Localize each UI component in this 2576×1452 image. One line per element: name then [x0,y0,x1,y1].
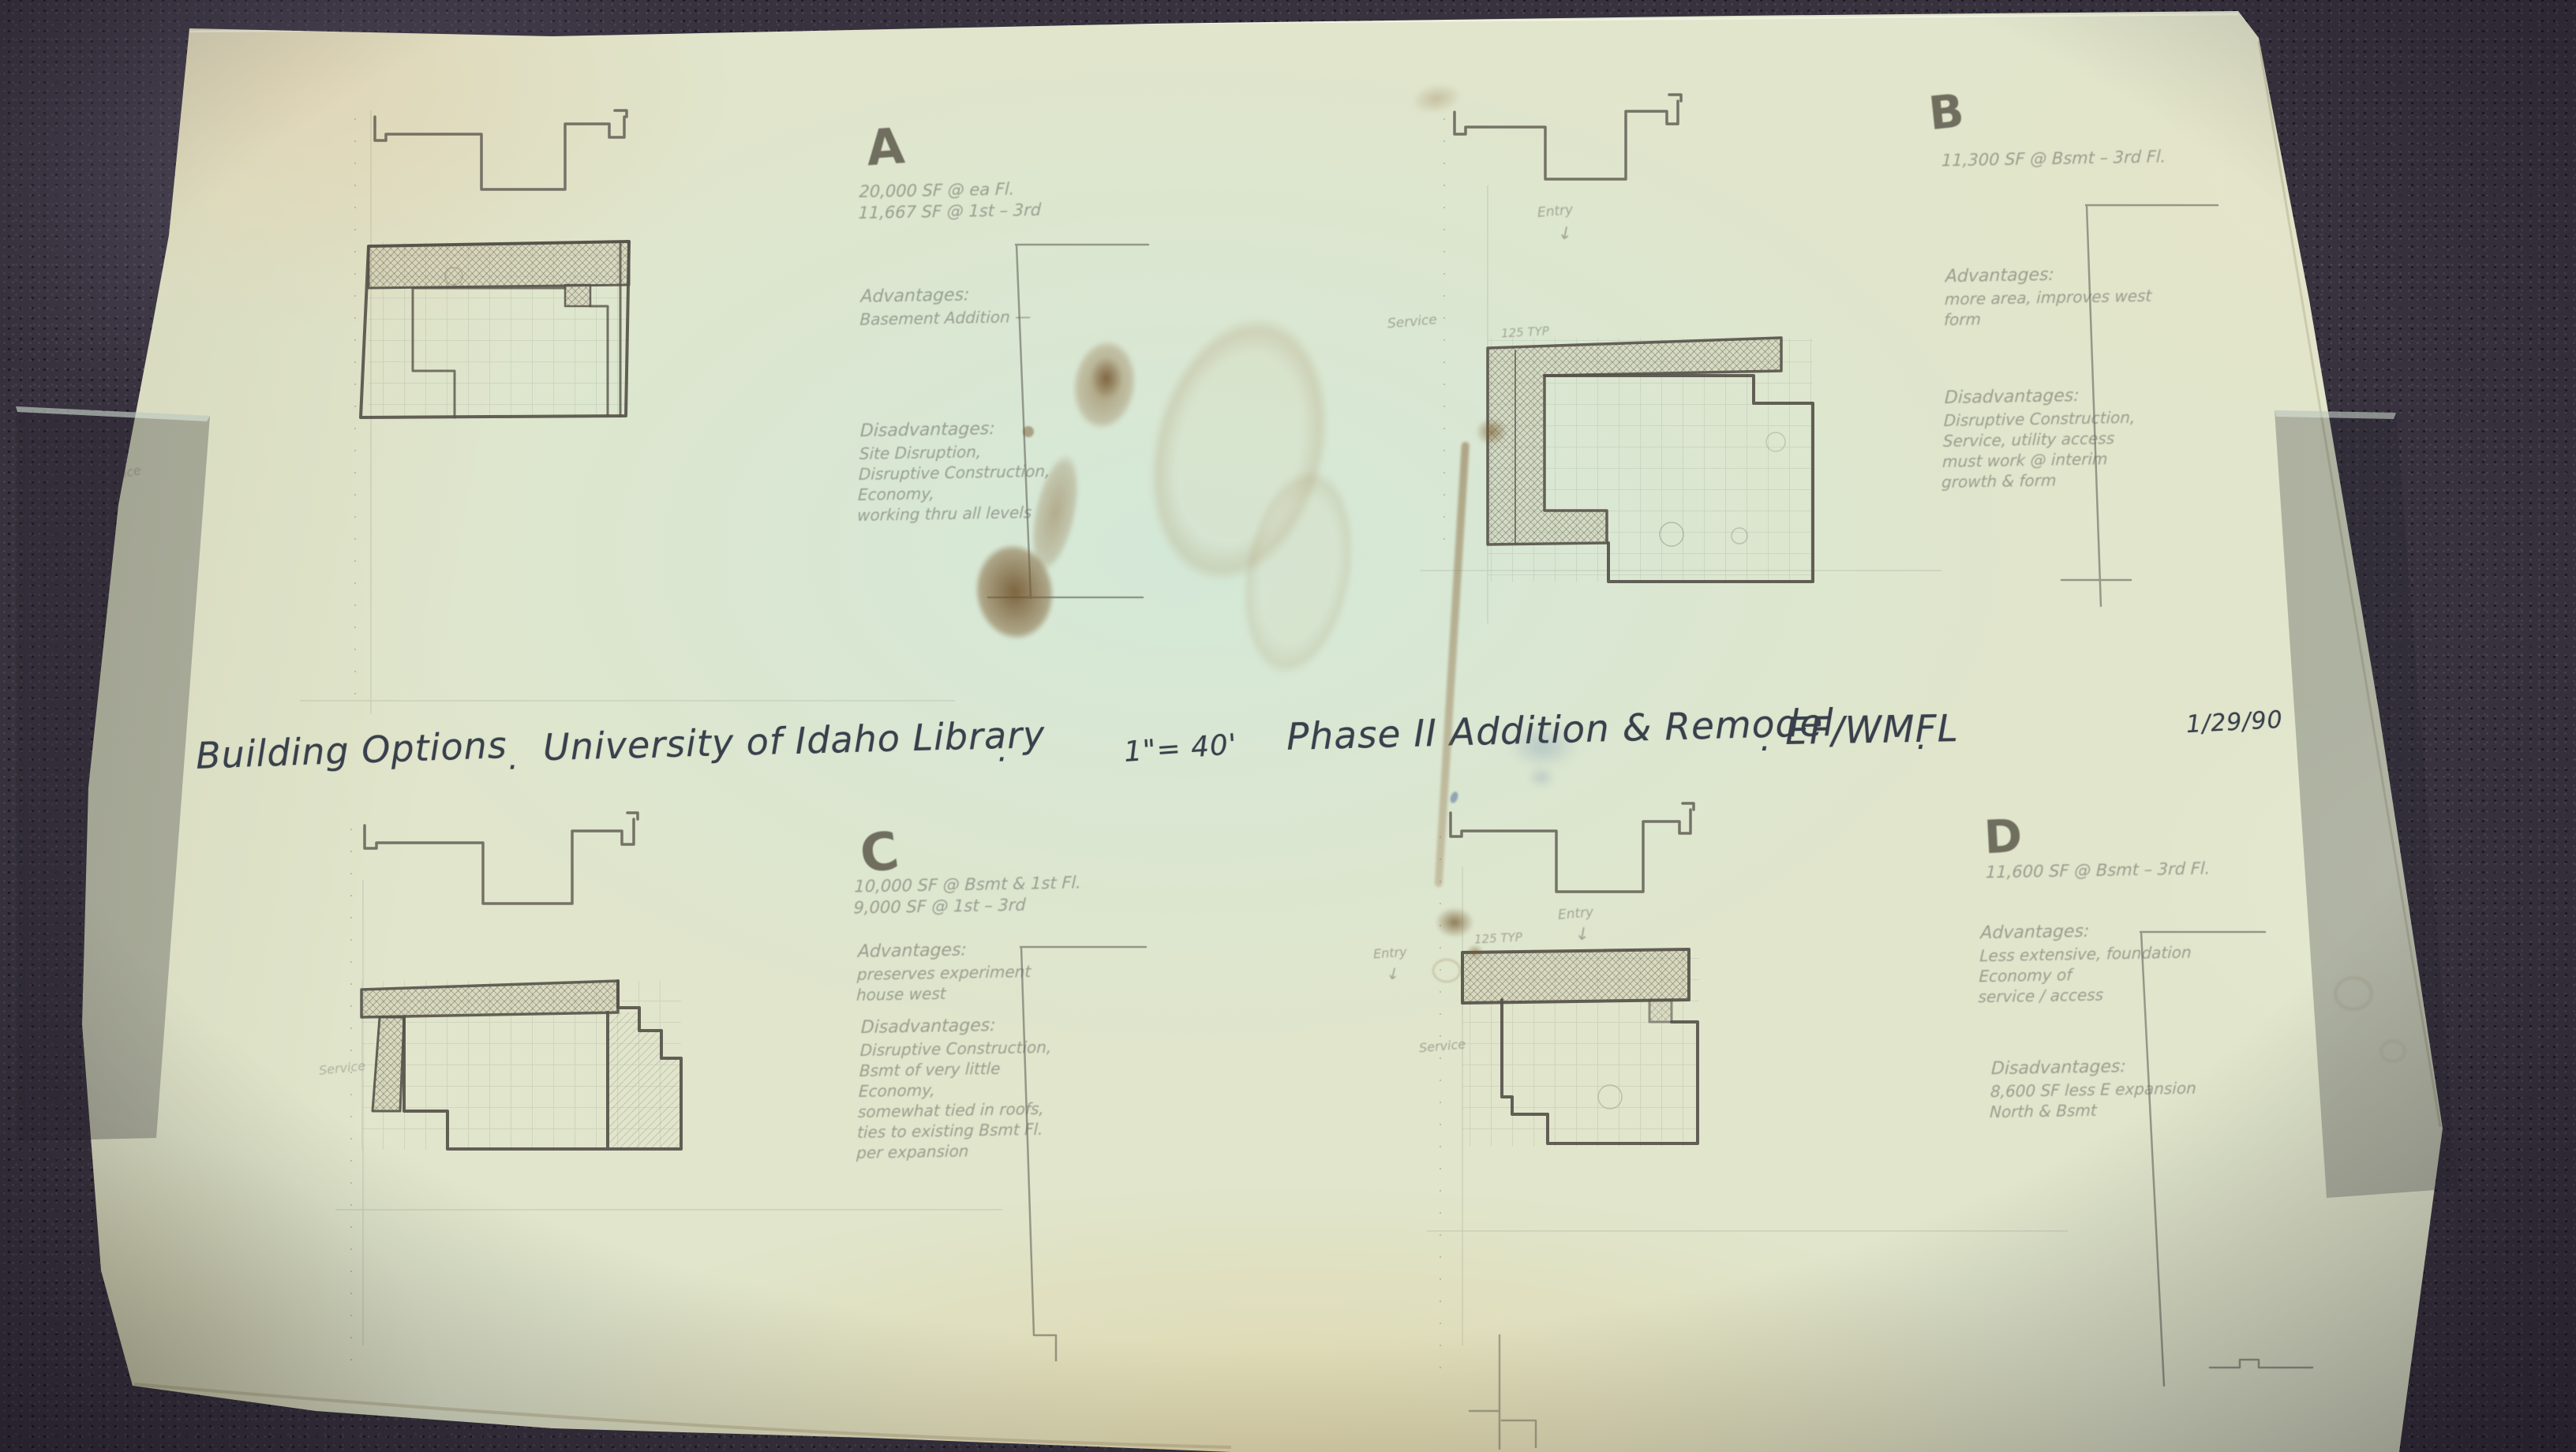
advantages-lines: preserves experimenthouse west [856,961,1032,1005]
photo-of-sketch-sheet: { "title": { "project": "Building Option… [0,0,2576,1452]
advantages-lines: more area, improves westform [1944,286,2152,331]
notes-line: ties to existing Bsmt Fl. [857,1119,1049,1143]
option-c-disadvantages: Disadvantages: Disruptive Construction,B… [856,1015,1053,1163]
notes-line: Disruptive Construction, [859,1037,1051,1061]
title-dot: · [1915,728,1926,766]
notes-line: 11,600 SF @ Bsmt – 3rd Fl. [1986,859,2211,884]
dim-annotation-d: 125 TYP [1474,930,1523,946]
option-d-disadvantages: Disadvantages: 8,600 SF less E expansion… [1990,1056,2198,1123]
disadvantages-lines: Site Disruption,Disruptive Construction,… [857,440,1051,526]
option-b-disadvantages: Disadvantages: Disruptive Construction,S… [1941,385,2136,492]
disadvantages-lines: Disruptive Construction,Bsmt of very lit… [856,1037,1052,1163]
entry-annotation-d: Entry [1557,904,1594,923]
notes-line: 8,600 SF less E expansion [1990,1078,2197,1102]
notes-line: 11,300 SF @ Bsmt – 3rd Fl. [1941,147,2166,172]
notes-line: house west [856,982,1031,1005]
notes-line: more area, improves west [1945,286,2152,310]
plan-a-roof-outline [375,110,627,189]
advantages-lines: Less extensive, foundationEconomy ofserv… [1978,942,2192,1008]
dim-annotation-b: 125 TYP [1501,324,1550,340]
notes-line: must work @ interim [1942,448,2134,472]
sketch-sheet: A B C D 20,000 SF @ ea Fl.11,667 SF @ 1s… [0,0,2576,1452]
disadvantages-heading: Disadvantages: [860,1015,1052,1038]
advantages-heading: Advantages: [860,284,1032,308]
notes-line: 11,667 SF @ 1st – 3rd [858,200,1042,224]
option-d-label: D [1983,809,2024,864]
title-dot: · [996,742,1007,778]
plan-a-addition-hatch [369,241,629,288]
title-firm: EF/WMFL [1785,707,1960,754]
plan-d-addition-hatch [1462,949,1689,1003]
notes-line: 10,000 SF @ Bsmt & 1st Fl. [854,872,1081,897]
notes-line: Basement Addition — [859,306,1032,330]
advantages-heading: Advantages: [858,939,1032,963]
disadvantages-heading: Disadvantages: [859,418,1051,442]
plan-c-roof-outline [365,813,638,904]
notes-line: per expansion [856,1140,1048,1163]
notes-line: working thru all levels [857,502,1049,526]
notes-line: 20,000 SF @ ea Fl. [859,178,1043,203]
option-b-advantages: Advantages: more area, improves westform [1944,264,2153,331]
title-date: 1/29/90 [2185,706,2283,739]
option-a-advantages: Advantages: Basement Addition — [859,284,1032,330]
notes-line: Less extensive, foundation [1979,942,2192,967]
notes-line: growth & form [1941,469,2133,492]
option-b-area-notes: 11,300 SF @ Bsmt – 3rd Fl. [1941,147,2166,172]
title-dot: · [507,750,518,786]
entry-annotation-b: Entry [1537,202,1574,221]
advantages-lines: Basement Addition — [859,306,1032,330]
disadvantages-heading: Disadvantages: [1944,385,2136,409]
plan-d-roof-outline [1451,803,1694,892]
plan-b-drawing [1455,95,2218,606]
option-b-label: B [1926,84,1967,140]
notes-line: preserves experiment [857,961,1032,985]
disadvantages-lines: 8,600 SF less E expansionNorth & Bsmt [1990,1078,2197,1123]
disadvantages-lines: Disruptive Construction,Service, utility… [1941,407,2136,492]
option-a-area-notes: 20,000 SF @ ea Fl.11,667 SF @ 1st – 3rd [858,178,1042,224]
option-c-advantages: Advantages: preserves experimenthouse we… [856,939,1032,1005]
option-a-label: A [865,117,907,177]
entry-annotation-c: Entry [1372,945,1407,962]
title-dot: · [1758,729,1769,768]
notes-line: form [1944,306,2151,331]
plan-b-roof-outline [1455,95,1681,179]
notes-line: service / access [1978,983,2190,1008]
notes-line: Disruptive Construction, [859,461,1050,485]
notes-line: 9,000 SF @ 1st – 3rd [853,893,1080,919]
notes-line: North & Bsmt [1990,1098,2196,1123]
option-c-area-notes: 10,000 SF @ Bsmt & 1st Fl.9,000 SF @ 1st… [853,872,1081,919]
advantages-heading: Advantages: [1980,920,2192,945]
option-a-disadvantages: Disadvantages: Site Disruption,Disruptiv… [857,418,1052,526]
advantages-heading: Advantages: [1945,264,2153,288]
disadvantages-heading: Disadvantages: [1991,1056,2198,1080]
option-d-area-notes: 11,600 SF @ Bsmt – 3rd Fl. [1986,859,2211,884]
option-d-advantages: Advantages: Less extensive, foundationEc… [1978,920,2192,1008]
